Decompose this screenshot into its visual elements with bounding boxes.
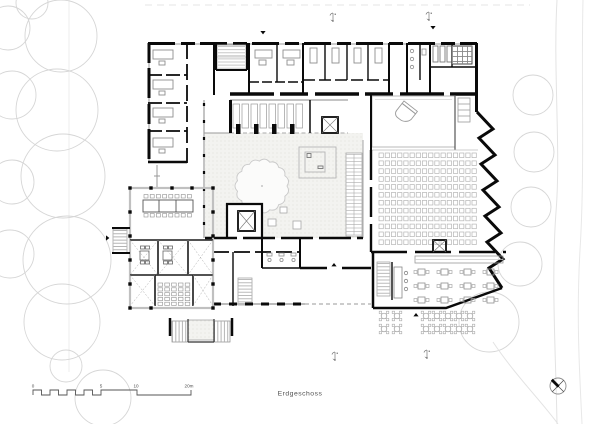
cafe-chair [460,271,463,274]
pilaster [170,186,173,189]
pilaster [211,282,214,285]
auditorium-seat [422,240,426,245]
terrace-chair [399,318,401,320]
terrace-table [445,326,451,332]
auditorium-seat [385,169,389,174]
terrace-chair [379,331,381,333]
auditorium-seat [466,232,470,237]
terrace-chair [421,318,423,320]
auditorium-seat [410,169,414,174]
auditorium-seat [466,200,470,205]
cafe-bar [394,267,408,298]
auditorium-seat [391,216,395,221]
tree-canopy [75,370,131,424]
villa-chair [185,293,190,296]
auditorium-seat [435,200,439,205]
auditorium-seat [398,200,402,205]
auditorium-seat [410,216,414,221]
auditorium-seat [398,169,402,174]
terrace-chair [450,331,452,333]
tree-canopy [513,75,553,115]
scale-bar-line [33,390,191,395]
terrace-chair [454,324,456,326]
villa-chair [172,302,177,305]
auditorium-seat [447,177,451,182]
villa-chair [165,293,170,296]
terrace-chair [432,331,434,333]
courtyard [204,100,363,238]
cafe-tables [414,269,498,303]
terrace-chair [472,331,474,333]
villa-chair [158,293,163,296]
villa-chair [158,283,163,286]
north-arrow-icon [550,378,566,394]
pilaster [211,258,214,261]
auditorium-seat [379,177,383,182]
auditorium-seat [441,216,445,221]
auditorium-seat [379,232,383,237]
auditorium-seat [460,153,464,158]
terrace-chair [443,318,445,320]
conference-chair [163,195,167,199]
cafe-table [464,269,471,275]
terrace-chair [454,318,456,320]
auditorium-seat [391,240,395,245]
villa-chair [165,302,170,305]
cafe-chair [483,271,486,274]
conference-chair [169,195,173,199]
conference-chair [156,195,160,199]
auditorium-seat [379,200,383,205]
auditorium-seat [385,224,389,229]
auditorium-seat [416,224,420,229]
conference-chair [144,214,148,218]
terrace-chair [421,324,423,326]
auditorium-seats [379,153,476,245]
auditorium-seat [410,161,414,166]
auditorium-seat [460,208,464,213]
terrace-chair [465,331,467,333]
auditorium-seat [385,185,389,190]
auditorium-seat [416,216,420,221]
entrance-arrow-right-icon [106,235,109,240]
cafe-chair [483,299,486,302]
auditorium-seat [391,200,395,205]
auditorium-seat [441,169,445,174]
stage-room [371,95,470,150]
auditorium-seat [410,232,414,237]
auditorium-seat [391,153,395,158]
auditorium-seat [460,240,464,245]
auditorium-seat [441,193,445,198]
section-marker-label-dot [337,353,338,354]
right-path-diagonal [493,342,558,424]
section-marker-arrowhead [332,359,336,361]
auditorium-seat [429,161,433,166]
auditorium-seat [453,232,457,237]
cafe-chair [426,271,429,274]
cafe-table [441,269,448,275]
auditorium-seat [404,224,408,229]
auditorium-seat [379,240,383,245]
pilaster [211,306,214,309]
auditorium-seat [466,216,470,221]
auditorium-seat [453,240,457,245]
auditorium-seat [472,200,476,205]
auditorium-seat [435,232,439,237]
auditorium-seat [385,208,389,213]
terrace-chair [443,331,445,333]
terrace-chair [465,318,467,320]
villa-chair [172,297,177,300]
auditorium-seat [404,232,408,237]
villa-chair [172,283,177,286]
pilaster [128,306,131,309]
section-marker-label-dot [335,14,336,15]
auditorium-seat [385,193,389,198]
auditorium-seat [466,224,470,229]
auditorium-seat [472,177,476,182]
auditorium-seat [435,177,439,182]
tree-canopy [498,242,542,286]
terrace-chair [386,318,388,320]
villa-chair [185,297,190,300]
terrace-chair [439,324,441,326]
villa [112,165,232,342]
auditorium-seat [391,232,395,237]
terrace-chair [386,311,388,313]
section-marker-label-dot [429,351,430,352]
scale-tick-label: 0 [32,384,35,389]
tree-canopy [0,160,34,204]
terrace-chair [428,331,430,333]
terrace-chair [399,311,401,313]
cafe-table [418,297,425,303]
auditorium-seat [416,200,420,205]
right-path-line-2 [578,0,583,424]
cafe-chair [472,285,475,288]
auditorium-seat [435,161,439,166]
auditorium-seat [472,193,476,198]
conference-chair [150,195,154,199]
villa-chair [185,302,190,305]
auditorium-seat [416,240,420,245]
auditorium-seat [404,185,408,190]
auditorium-seat [410,208,414,213]
terrace-table [467,313,473,319]
tree-canopy [16,69,98,151]
terrace-chair [450,311,452,313]
section-marker-arrowhead [424,357,428,359]
auditorium-seat [472,185,476,190]
villa-small-tables [140,246,173,264]
west-wing [148,43,187,163]
cafe-table [418,269,425,275]
auditorium-seat [435,208,439,213]
auditorium-seat [429,232,433,237]
auditorium-seat [460,169,464,174]
scale-tick-label: 20m [185,384,194,389]
auditorium-seat [453,153,457,158]
cafe-table [487,297,494,303]
terrace-chair [386,331,388,333]
auditorium-seat [379,161,383,166]
cafe-chair [449,285,452,288]
auditorium-seat [422,193,426,198]
terrace-table [434,313,440,319]
auditorium-seat [447,232,451,237]
trees-left [0,0,131,424]
new-building [148,43,506,308]
terrace-chair [454,331,456,333]
auditorium-seat [447,193,451,198]
auditorium-seat [460,193,464,198]
tree-canopy [50,350,82,382]
pilaster [211,210,214,213]
pilaster [211,234,214,237]
auditorium-seat [429,208,433,213]
auditorium-seat [441,200,445,205]
trees-right [459,75,554,352]
scale-tick-label: 5 [100,384,103,389]
auditorium-seat [422,216,426,221]
drawing-title: Erdgeschoss [278,391,323,398]
terrace-chair [379,324,381,326]
conference-chair [156,214,160,218]
booths [233,104,303,134]
villa-audience-chairs [158,283,190,305]
villa-chair [178,283,183,286]
covered-walkway-link [154,165,160,187]
auditorium-seat [466,177,470,182]
auditorium-seat [460,224,464,229]
cafe-table [441,283,448,289]
auditorium-seat [472,240,476,245]
auditorium-seat [410,177,414,182]
auditorium-seat [441,177,445,182]
terrace-chair [399,324,401,326]
cafe-chair [449,299,452,302]
auditorium-seat [466,240,470,245]
cafe-chair [414,271,417,274]
terrace-chair [472,324,474,326]
villa-chair [165,288,170,291]
cafe-counter [415,256,503,263]
section-marker-label-dot [431,13,432,14]
storage-shelves [433,46,452,62]
conference-chair [175,214,179,218]
auditorium-seat [422,224,426,229]
terrace-chair [399,331,401,333]
auditorium-seat [398,216,402,221]
auditorium-seat [447,185,451,190]
terrace-chair [421,311,423,313]
auditorium-seat [416,161,420,166]
auditorium-seat [385,153,389,158]
terrace-chair [465,324,467,326]
terrace-chair [392,311,394,313]
terrace-chair [461,324,463,326]
terrace-table [445,313,451,319]
terrace-table [381,313,387,319]
auditorium-seat [416,169,420,174]
booth-wall-post [272,124,277,134]
pilaster [128,282,131,285]
auditorium-seat [435,169,439,174]
auditorium-seat [460,177,464,182]
auditorium-seat [460,185,464,190]
auditorium-seat [416,177,420,182]
conference-chairs [144,195,191,218]
cafe-chair [483,285,486,288]
west-wing-desks [153,50,173,153]
auditorium [371,150,506,252]
auditorium-seat [379,208,383,213]
auditorium-seat [441,153,445,158]
villa-chair [178,297,183,300]
auditorium-seat [398,177,402,182]
auditorium-seat [460,161,464,166]
cafe-chair [495,299,498,302]
south-block-stair [238,278,252,305]
auditorium-seat [379,193,383,198]
auditorium-seat [379,224,383,229]
terrace-table [456,313,462,319]
cafe-table [441,297,448,303]
auditorium-seat [422,232,426,237]
cafe-table [487,283,494,289]
auditorium-seat [453,169,457,174]
terrace-chair [432,324,434,326]
terrace-chair [386,324,388,326]
scale-tick-label: 10 [133,384,139,389]
auditorium-seat [441,161,445,166]
auditorium-seat [379,216,383,221]
auditorium-seat [398,153,402,158]
auditorium-seat [447,200,451,205]
pilaster [190,186,193,189]
terrace-chair [392,318,394,320]
terrace-chair [428,311,430,313]
cafe [373,240,503,308]
cafe-table [418,283,425,289]
tree-canopy [25,0,97,72]
tree-canopy [24,284,100,360]
auditorium-seat [447,169,451,174]
terrace-chair [439,311,441,313]
cafe-table [464,283,471,289]
auditorium-seat [410,224,414,229]
pilaster [128,234,131,237]
auditorium-seat [410,153,414,158]
cafe-chair [449,271,452,274]
villa-chair [185,283,190,286]
auditorium-seat [404,216,408,221]
auditorium-seat [385,216,389,221]
terrace-table [381,326,387,332]
villa-chair [158,297,163,300]
auditorium-seat [422,185,426,190]
cafe-chair [495,271,498,274]
cafe-chair [437,285,440,288]
auditorium-seat [435,216,439,221]
pilaster [149,186,152,189]
wc-fixtures-north [410,49,426,69]
auditorium-seat [398,161,402,166]
auditorium-seat [435,185,439,190]
villa-chair [178,302,183,305]
auditorium-seat [416,193,420,198]
terrace-table [423,326,429,332]
booth-cell [242,104,249,128]
auditorium-seat [422,208,426,213]
villa-south-porch [170,318,232,342]
cafe-chair [426,285,429,288]
terrace-chair [428,318,430,320]
auditorium-seat [379,153,383,158]
booth-wall-post [254,124,259,134]
pilaster [128,258,131,261]
cafe-chair [437,299,440,302]
terrace-chair [465,311,467,313]
auditorium-seat [453,161,457,166]
terrace-chair [450,318,452,320]
auditorium-seat [460,232,464,237]
auditorium-seat [416,232,420,237]
scale-bar: 051020m [32,384,194,396]
booth-cell [278,104,285,128]
auditorium-seat [385,177,389,182]
terrace-table [394,326,400,332]
elevator-3-x-icon [433,240,446,252]
auditorium-seat [385,232,389,237]
auditorium-seat [391,169,395,174]
terrace-chair [421,331,423,333]
auditorium-seat [398,224,402,229]
auditorium-seat [466,208,470,213]
auditorium-seat [447,240,451,245]
auditorium-seat [398,185,402,190]
auditorium-seat [453,216,457,221]
main-stair [216,43,247,70]
pilaster [149,306,152,309]
auditorium-seat [429,185,433,190]
terrace-chair [472,311,474,313]
auditorium-seat [447,153,451,158]
auditorium-seat [453,208,457,213]
booth-wall-post [236,124,241,134]
entrance-arrow-up-icon [413,313,418,316]
villa-chair [178,288,183,291]
auditorium-seat [404,193,408,198]
auditorium-seat [435,193,439,198]
terrace-chair [450,324,452,326]
cafe-chair [426,299,429,302]
tree-canopy [514,132,554,172]
auditorium-seat [447,208,451,213]
tree-canopy [16,0,48,19]
auditorium-seat [447,216,451,221]
auditorium-seat [404,208,408,213]
auditorium-seat [404,177,408,182]
cafe-chair [472,271,475,274]
cafe-chair [437,271,440,274]
terrace-chair [432,318,434,320]
side-stage-shelf [458,98,470,122]
auditorium-seat [379,185,383,190]
scale-bar-labels: 051020m [32,384,194,389]
terrace-chair [443,311,445,313]
